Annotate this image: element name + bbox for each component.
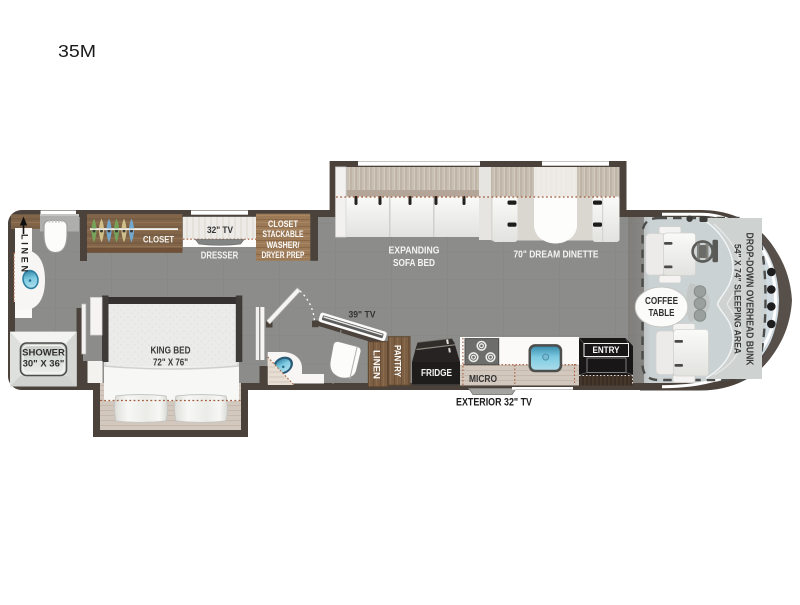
svg-text:EXTERIOR 32" TV: EXTERIOR 32" TV — [456, 397, 533, 409]
svg-text:DROP-DOWN OVERHEAD BUNK: DROP-DOWN OVERHEAD BUNK — [744, 233, 755, 367]
svg-text:FRIDGE: FRIDGE — [421, 368, 452, 379]
svg-text:39" TV: 39" TV — [349, 310, 377, 321]
svg-text:SHOWER: SHOWER — [22, 348, 65, 359]
svg-text:COFFEE: COFFEE — [645, 296, 678, 307]
svg-text:ENTRY: ENTRY — [593, 345, 621, 356]
svg-text:CLOSET: CLOSET — [143, 235, 174, 245]
svg-text:MICRO: MICRO — [469, 374, 497, 385]
svg-text:72" X 76": 72" X 76" — [153, 357, 188, 369]
svg-text:EXPANDING: EXPANDING — [389, 245, 440, 257]
svg-text:32" TV: 32" TV — [207, 225, 234, 236]
svg-text:DRESSER: DRESSER — [201, 251, 239, 262]
svg-text:DRYER PREP: DRYER PREP — [262, 250, 305, 260]
svg-text:30" X 36": 30" X 36" — [23, 359, 65, 370]
svg-text:WASHER/: WASHER/ — [267, 240, 300, 250]
svg-text:KING BED: KING BED — [151, 345, 191, 357]
svg-text:TABLE: TABLE — [649, 308, 675, 319]
svg-text:STACKABLE: STACKABLE — [263, 229, 304, 239]
svg-text:70" DREAM DINETTE: 70" DREAM DINETTE — [514, 249, 599, 261]
svg-text:PANTRY: PANTRY — [392, 345, 403, 378]
svg-text:CLOSET: CLOSET — [268, 219, 298, 229]
svg-text:35M: 35M — [58, 41, 96, 61]
svg-text:LINEN: LINEN — [371, 350, 382, 379]
svg-text:SOFA BED: SOFA BED — [393, 257, 435, 269]
svg-text:54" X 74" SLEEPING AREA: 54" X 74" SLEEPING AREA — [732, 244, 743, 354]
